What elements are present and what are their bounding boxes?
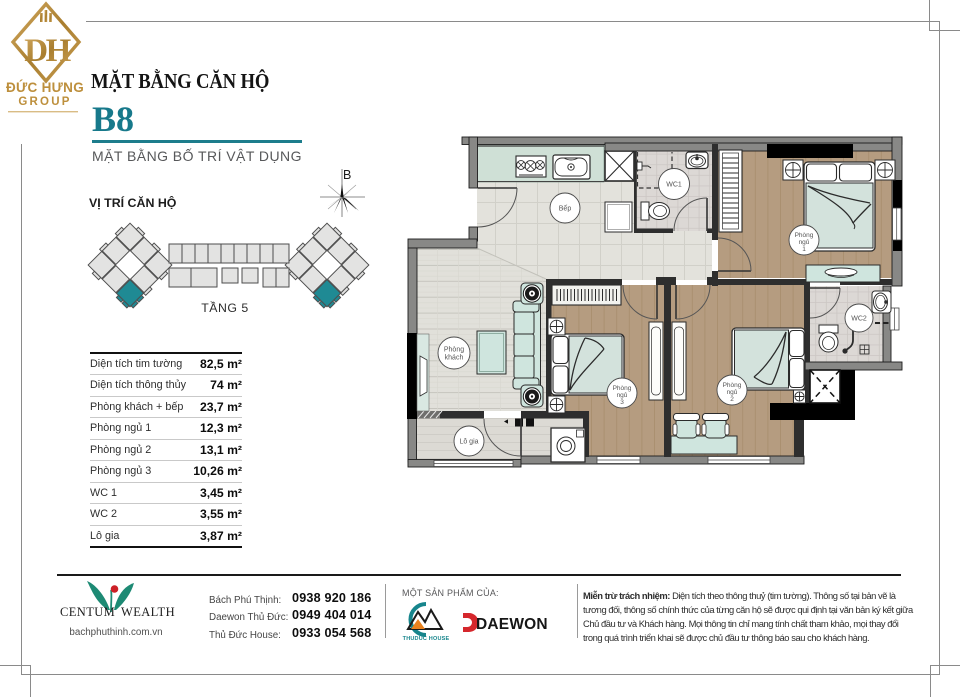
svg-text:Lô gia: Lô gia (459, 439, 478, 446)
svg-text:2: 2 (730, 396, 734, 403)
svg-text:ngủ: ngủ (617, 391, 628, 399)
svg-text:ngủ: ngủ (727, 388, 738, 396)
svg-text:WC2: WC2 (851, 316, 867, 323)
svg-text:3: 3 (620, 399, 624, 406)
svg-text:Phòng: Phòng (444, 347, 464, 354)
svg-text:Phòng: Phòng (723, 382, 742, 389)
svg-text:ngủ: ngủ (799, 238, 810, 246)
svg-text:Phòng: Phòng (795, 232, 814, 239)
svg-text:Bếp: Bếp (559, 204, 572, 213)
svg-text:WC1: WC1 (666, 182, 682, 189)
svg-text:1: 1 (802, 246, 806, 253)
svg-text:Phòng: Phòng (613, 385, 632, 392)
svg-text:khách: khách (445, 355, 464, 362)
